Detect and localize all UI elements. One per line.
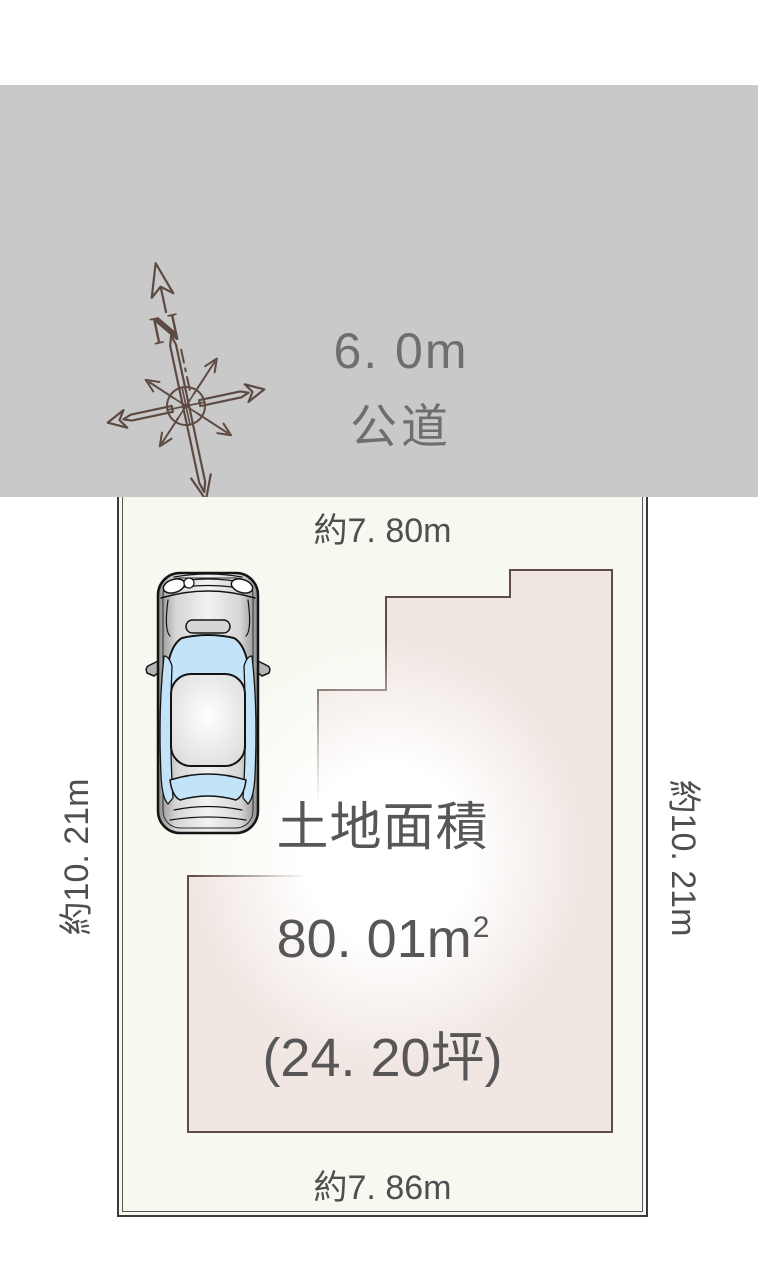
dimension-right: 約10. 21m bbox=[661, 658, 705, 1058]
land-area-m2: 80. 01m2 bbox=[117, 902, 648, 985]
road-label-group: 6. 0m 公道 bbox=[201, 314, 601, 464]
car-roof bbox=[171, 674, 245, 766]
compass-north-arrow bbox=[145, 261, 173, 298]
compass-north-letter: N bbox=[147, 304, 185, 354]
land-area-tsubo: (24. 20坪) bbox=[117, 1021, 648, 1096]
road-surface-label: 公道 bbox=[201, 389, 601, 464]
road-band: N 6. 0m 公道 bbox=[0, 85, 758, 497]
land-area-label: 土地面積 80. 01m2 (24. 20坪) bbox=[117, 755, 648, 1132]
dimension-bottom: 約7. 86m bbox=[117, 1166, 648, 1210]
road-width-label: 6. 0m bbox=[201, 314, 601, 389]
dimension-left: 約10. 21m bbox=[55, 657, 99, 1057]
compass-west-arrow bbox=[123, 406, 173, 422]
land-area-title: 土地面積 bbox=[117, 791, 648, 866]
car-vent bbox=[186, 620, 230, 633]
site-plan-canvas: N 6. 0m 公道 bbox=[0, 0, 758, 1280]
land-area-m2-value: 80. 01m bbox=[277, 909, 472, 969]
dimension-top: 約7. 80m bbox=[117, 509, 648, 553]
land-area-m2-sup: 2 bbox=[473, 911, 490, 944]
